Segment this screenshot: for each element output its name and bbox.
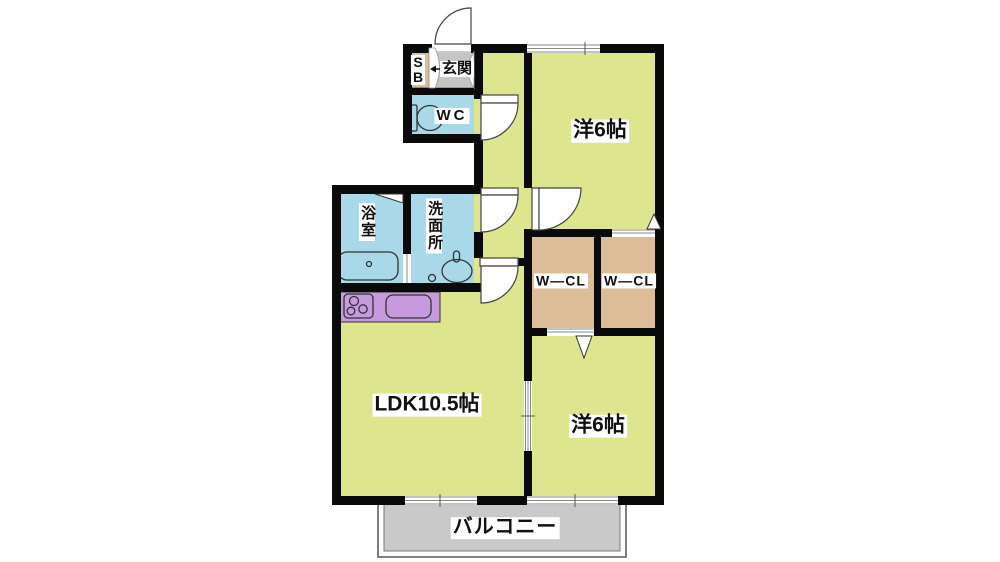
ldk-label: LDK10.5帖 xyxy=(372,394,481,417)
wall-hall-right-1 xyxy=(524,44,532,188)
wall-closet-divider xyxy=(594,237,601,328)
wall-hall-left-3 xyxy=(474,232,483,258)
toilet-label: WC xyxy=(435,108,470,124)
shoe-box-label: S B xyxy=(411,55,425,85)
wall-ldk-bedroom-2 xyxy=(524,451,532,496)
floorplan-canvas: S B 玄関 WC 浴室 洗面所 W―CL W―CL 洋6帖 洋6帖 LDK10… xyxy=(0,0,1000,562)
wall-entrance-wc-divider xyxy=(403,88,477,95)
entrance-label: 玄関 xyxy=(440,61,474,77)
washroom-door-leaf xyxy=(481,188,518,195)
shoe-box-label-line1: S xyxy=(413,55,423,70)
wall-ldk-bedroom-1 xyxy=(524,336,532,381)
wall-hall-right-2 xyxy=(524,230,532,336)
wall-left xyxy=(332,185,341,505)
wall-closet-bottom-right xyxy=(594,328,664,336)
floorplan-drawing xyxy=(0,0,1000,562)
entrance-door-swing xyxy=(435,8,471,44)
closet-left-label: W―CL xyxy=(534,273,588,288)
ldk-door-leaf xyxy=(480,258,518,266)
bath-sliding-door xyxy=(403,252,411,283)
wall-hall-left-1 xyxy=(474,44,483,99)
wall-bath-divider xyxy=(403,194,411,254)
bedroom-bottom-label: 洋6帖 xyxy=(569,415,627,438)
wall-bath-top xyxy=(332,185,483,194)
bathroom-label: 浴室 xyxy=(359,203,375,241)
wc-door-leaf xyxy=(481,95,518,103)
wall-hall-left-2 xyxy=(474,134,483,190)
shoe-box-label-line2: B xyxy=(413,70,423,85)
washroom-label: 洗面所 xyxy=(426,199,442,254)
wall-ldk-top xyxy=(332,283,483,292)
bedroom-door-leaf xyxy=(532,188,539,230)
wall-wc-bottom xyxy=(403,134,483,143)
wall-right xyxy=(655,44,664,505)
balcony-label: バルコニー xyxy=(451,517,560,539)
wall-closet-bottom-left xyxy=(524,328,547,336)
closet-right-label: W―CL xyxy=(602,273,656,288)
bedroom-top-label: 洋6帖 xyxy=(571,120,629,143)
